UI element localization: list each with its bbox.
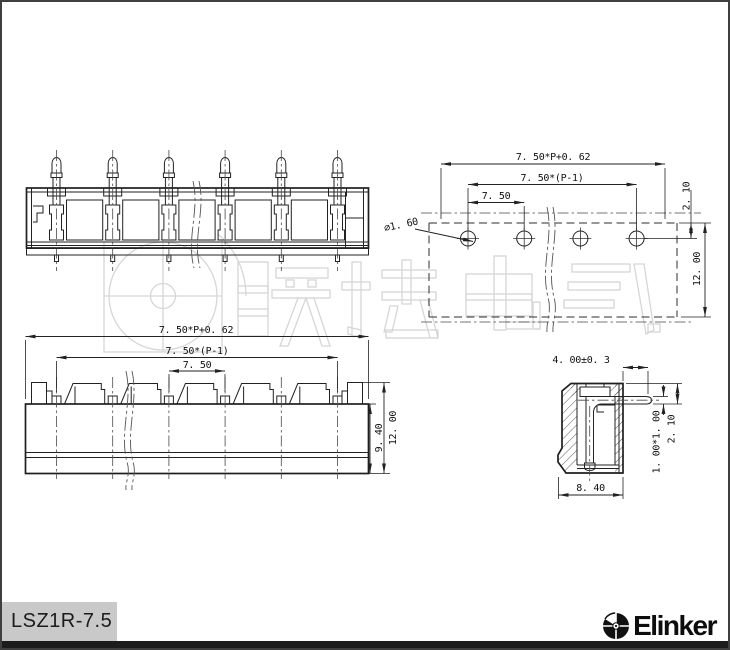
dim-drill-height: 12. 00 <box>692 252 703 287</box>
dim-drill-overall: 7. 50*P+0. 62 <box>516 152 591 163</box>
dim-front-span: 7. 50*(P-1) <box>166 346 229 357</box>
drill-plan-view: 7. 50*P+0. 62 7. 50*(P-1) 7. 50 ∅1. 60 2… <box>383 152 711 332</box>
dim-pin-section: 1. 00*1. 00 <box>652 410 663 473</box>
side-elevation-view <box>27 150 369 271</box>
dim-pin-length: 4. 00±0. 3 <box>552 355 609 366</box>
dim-edge-to-hole: 2. 10 <box>682 181 693 210</box>
dim-front-overall: 7. 50*P+0. 62 <box>159 325 234 336</box>
model-label-box: LSZ1R-7.5 <box>2 602 117 641</box>
drawing-canvas: 7. 50*P+0. 62 7. 50*(P-1) 7. 50 ∅1. 60 2… <box>0 0 730 650</box>
dim-front-body-height: 9. 40 <box>374 423 385 452</box>
dim-depth: 8. 40 <box>576 483 605 494</box>
dim-hole-diameter: ∅1. 60 <box>383 216 419 234</box>
dim-pin-offset: 2. 10 <box>667 414 678 443</box>
dim-front-total-height: 12. 00 <box>388 411 399 446</box>
dim-drill-span: 7. 50*(P-1) <box>521 173 584 184</box>
brand-name: Elinker <box>633 611 716 641</box>
model-number: LSZ1R-7.5 <box>2 610 112 633</box>
front-elevation-view: 7. 50*P+0. 62 7. 50*(P-1) 7. 50 9. 40 12… <box>26 325 400 490</box>
bottom-bar <box>2 641 728 649</box>
technical-drawing-page: 7. 50*P+0. 62 7. 50*(P-1) 7. 50 ∅1. 60 2… <box>0 0 730 650</box>
dim-drill-pitch: 7. 50 <box>482 191 511 202</box>
profile-section-view: 4. 00±0. 3 8. 40 1. 00*1. 00 2. 10 <box>552 355 682 499</box>
dim-front-pitch: 7. 50 <box>183 360 212 371</box>
brand-logo-icon <box>601 611 631 641</box>
brand-logo: Elinker <box>601 610 716 642</box>
